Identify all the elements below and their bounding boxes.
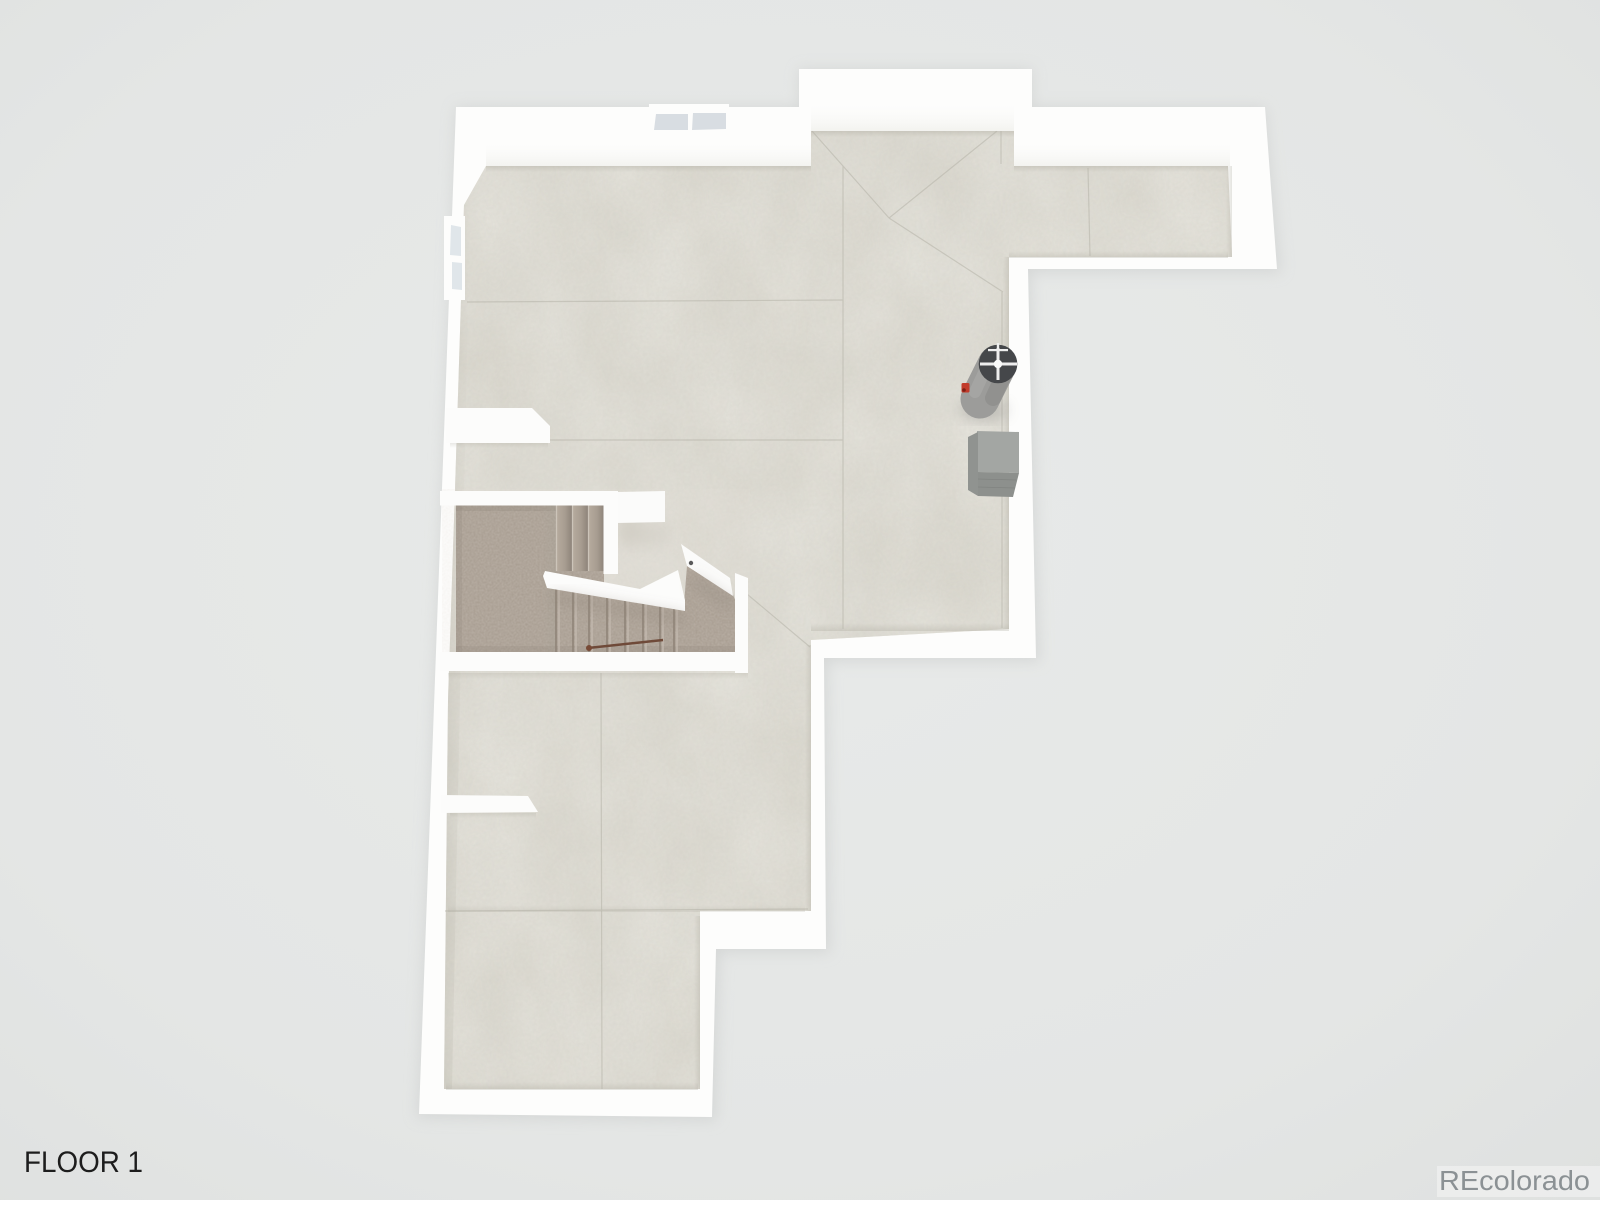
- svg-text:REcolorado: REcolorado: [1439, 1165, 1590, 1196]
- svg-text:FLOOR 1: FLOOR 1: [24, 1146, 143, 1179]
